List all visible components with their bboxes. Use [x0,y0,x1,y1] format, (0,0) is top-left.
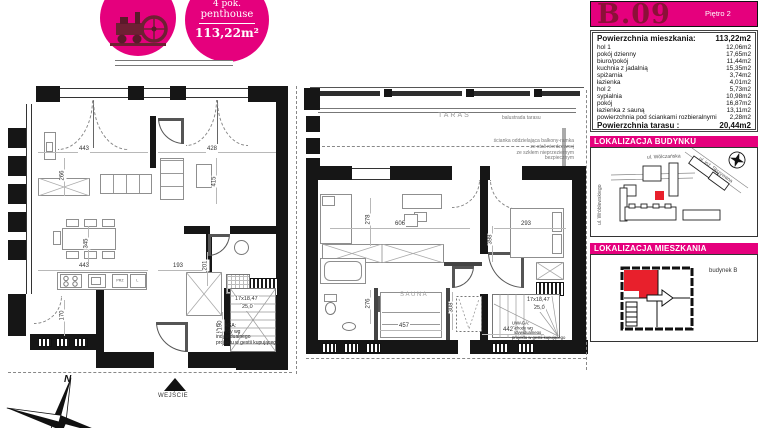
wall [8,128,26,148]
vent-grille [322,343,337,353]
door-arc [58,100,93,150]
roof-post [384,89,392,97]
site-map-drawing [591,148,757,236]
desk [402,194,442,209]
toilet [325,302,336,315]
street-label-top: ul. Wólczańska [647,153,681,160]
wall [318,166,352,180]
dim-label: 293 [520,221,532,228]
door-arc [186,100,217,146]
pillow [322,196,335,206]
side-table [404,214,418,227]
sauna-bench [382,324,440,325]
roof-line [310,87,584,88]
vent-grille [518,343,534,353]
table-header-row: Powierzchnia mieszkania: 113,22m2 [597,34,751,44]
sauna-label: SAUNA [400,292,428,298]
sink [342,322,356,331]
row-label: łazienka [597,79,620,86]
stairs-spec: 17x18,47 [526,297,551,304]
dim-label: 428 [206,146,218,153]
dim-label: 345 [84,237,91,249]
vintage-machine-icon [108,6,168,50]
row-value: 4,01m2 [730,79,751,86]
balustrade-label: balustrada tarasu [502,116,541,122]
wall [276,100,288,346]
dim-label: 415 [212,175,219,187]
dim-line [330,228,470,229]
toilet-tank [324,294,337,302]
stairs-area: 25,0 [533,305,546,312]
stairs-note: UWAGA: Schody wg indywidualnego projektu… [216,324,279,346]
window [144,88,170,98]
unit-type-line2: penthouse [201,9,254,20]
wall [522,166,578,180]
roof-edge-line [115,60,233,66]
chair [84,251,97,259]
floor-plan-sheet: 4 pok. penthouse 113,22m² B.09 Piętro 2 … [0,0,760,428]
header-label: Powierzchnia mieszkania: [597,34,696,44]
vent-grille [366,343,381,353]
entrance-arrow-icon [164,378,186,391]
sink-basin [91,277,101,285]
roof-panel [318,91,380,96]
row-label: sypialnia [597,93,622,100]
pillow [552,234,562,254]
roof-panel [542,91,580,96]
hob-icon [60,274,82,288]
table-row: kuchnia z jadalnią15,35m2 [597,65,751,72]
roof-post [466,89,474,97]
row-value: 16,87m2 [726,100,751,107]
table-row: łazienka4,01m2 [597,79,751,86]
wall [96,352,154,368]
dim-line [482,334,544,335]
row-value: 3,74m2 [730,72,751,79]
building-label: budynek B [709,268,737,274]
wall [446,288,450,340]
unit-title-banner: B.09 Piętro 2 [590,1,758,27]
vent-grille [492,343,508,353]
row-label: pokój [597,100,612,107]
wall [572,166,586,344]
area-table: Powierzchnia mieszkania: 113,22m2 hol 11… [590,30,758,132]
dim-label: 457 [398,323,410,330]
sauna-room [380,292,442,338]
appliance-label: L [136,279,138,283]
table-row: pokój dzienny17,65m2 [597,51,751,58]
row-value: 11,44m2 [727,58,751,65]
unit-area-badge: 113,22m² [195,27,259,39]
compass-rose-icon [2,372,120,428]
wall [8,156,26,176]
table-row: biuro/pokój11,44m2 [597,58,751,65]
tv [46,142,53,152]
row-value: 2,28m2 [730,114,751,121]
wall [96,290,104,352]
door-arc [34,296,62,324]
vent-grille [344,343,359,353]
dim-label: 170 [60,309,67,321]
site-map: ul. Wólczańska ul. inż. Skrzywana ul. Wr… [590,147,758,237]
wall [184,226,210,234]
chair [102,251,115,259]
wall [8,294,26,336]
window [26,104,32,294]
dim-label: 398 [488,233,495,245]
dim-label: 443 [78,263,90,270]
chair [84,219,97,227]
hatch-box [456,296,482,332]
wall [8,184,26,204]
wall [36,86,60,102]
dim-label: 278 [366,213,373,225]
door-arc [156,322,188,352]
dim-label: 193 [172,263,184,270]
wall [8,212,26,232]
window [60,88,128,98]
note-line: projektu w gestii kupującego [512,336,565,341]
footer-value: 20,44m2 [719,121,751,131]
table-row: spiżarnia3,74m2 [597,72,751,79]
apartment-locator: budynek B [590,254,758,342]
row-label: kuchnia z jadalnią [597,65,648,72]
chair [102,219,115,227]
door-arc [158,118,184,144]
note-line: projektu w gestii kupującego [216,341,279,347]
row-value: 10,98m2 [726,93,751,100]
dim-line [158,270,206,271]
boundary-line [296,86,297,374]
row-value: 12,06m2 [726,44,751,51]
unit-type-badge: 4 pok. penthouse 113,22m² [185,0,269,62]
row-value: 15,35m2 [726,65,751,72]
dim-label: 276 [366,297,373,309]
boundary-line [306,358,586,359]
sauna-bench [382,312,440,313]
row-label: powierzchnia pod ściankami rozbieralnymi [597,114,717,121]
unit-number: B.09 [597,0,671,30]
door-arc [217,100,248,146]
footer-label: Powierzchnia tarasu : [597,121,679,131]
door-arc [208,234,230,256]
vent-grille [74,338,88,347]
apartment-location-header: LOKALIZACJA MIESZKANIA [590,243,758,254]
table-row: powierzchnia pod ściankami rozbieralnymi… [597,114,751,121]
table-row: hol 112,06m2 [597,44,751,51]
wall [188,352,236,368]
window [352,168,390,180]
appliance-label: PRZ [116,279,123,283]
row-value: 13,11m2 [727,107,751,114]
unit-type-line1: 4 pok. [213,0,241,9]
dim-label: 606 [394,221,406,228]
map-compass-icon [727,150,747,170]
table-footer-row: Powierzchnia tarasu : 20,44m2 [597,121,751,131]
wall [306,166,318,344]
row-label: hol 1 [597,44,611,51]
row-label: spiżarnia [597,72,623,79]
floor-label: Piętro 2 [705,9,731,18]
roof-post [534,89,542,97]
dim-line [38,270,148,271]
wall [8,240,26,260]
table-row: sypialnia10,98m2 [597,93,751,100]
building-location-marker [655,191,664,200]
dim-line [380,330,442,331]
dim-line [494,228,566,229]
chair [66,219,79,227]
row-value: 17,65m2 [726,51,751,58]
badge-divider [199,23,255,24]
header-value: 113,22m2 [715,34,751,44]
wall [304,88,320,110]
washbasin [234,240,249,255]
dim-label: 308 [449,301,456,313]
dim-line [38,152,148,153]
dim-label: 442 [502,327,514,334]
entrance-label: WEJŚCIE [158,393,188,399]
wall [480,166,490,180]
bathtub-inner [324,261,362,281]
note-line: bezpiecznym [440,156,574,162]
row-value: 5,73m2 [730,86,751,93]
office-table [196,164,212,188]
vent-grille [56,338,70,347]
dim-label: 190 [218,319,225,331]
door-arc [452,266,474,288]
area-table-inner: Powierzchnia mieszkania: 113,22m2 hol 11… [592,32,756,130]
row-label: łazienka z sauną [597,107,645,114]
roof-panel [474,91,530,96]
dim-label: 443 [78,146,90,153]
row-label: biuro/pokój [597,58,628,65]
door-arc [452,180,480,208]
wardrobe-xbox [536,262,564,280]
wall [150,116,156,168]
wall [170,86,186,100]
building-location-header: LOKALIZACJA BUDYNKU [590,136,758,147]
vent-grille [38,338,52,347]
brand-logo-badge [100,0,176,56]
terrace-label: TARAS [438,112,471,119]
table-row: łazienka z sauną13,11m2 [597,107,751,114]
stairs-area: 25,0 [241,304,254,311]
stairs-spec: 17x18,47 [234,296,259,303]
wall [390,166,452,180]
compass-north-label: N [64,374,71,385]
pillow [552,212,562,232]
dim-label: 266 [60,169,67,181]
street-label-left: ul. Wróblewskiego [597,185,603,225]
chair [53,231,61,245]
wall [306,138,320,154]
sofa [100,174,152,194]
wall [306,116,320,132]
row-label: hol 2 [597,86,611,93]
wall [128,86,144,100]
boundary-line [586,90,587,370]
door-arc [93,100,128,150]
partition-note: ścianka oddzielająca balkony-ramka ze st… [440,139,574,162]
dim-label: 201 [203,259,210,271]
table-row: pokój16,87m2 [597,100,751,107]
shower-xbox [186,272,222,316]
roof-panel [392,91,462,96]
window [186,88,248,98]
office-sofa [160,158,184,200]
row-label: pokój dzienny [597,51,636,58]
wall [230,226,276,234]
stairs-note: UWAGA: Schody wg indywidualnego projektu… [512,322,565,341]
door-arc [490,180,520,210]
table-row: hol 25,73m2 [597,86,751,93]
chair [66,251,79,259]
